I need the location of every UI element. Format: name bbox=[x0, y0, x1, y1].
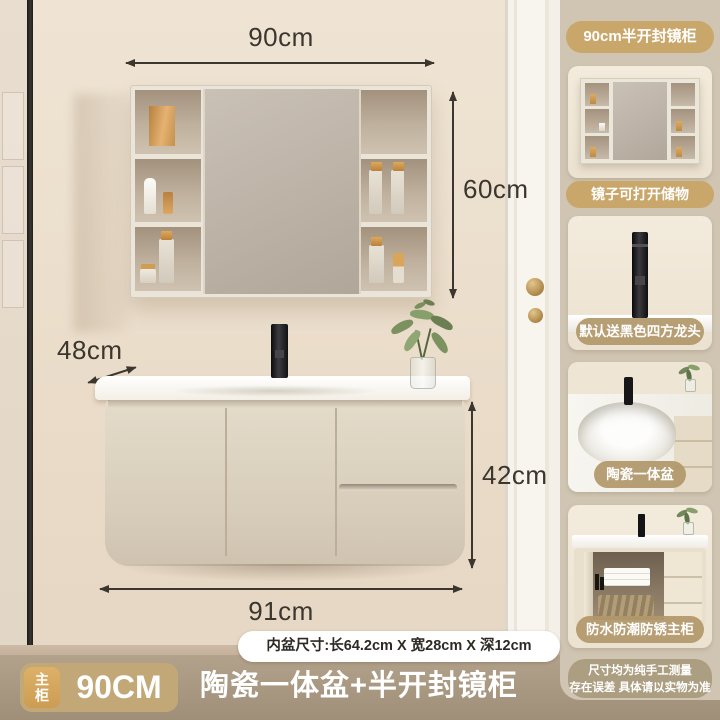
dim-label-top-width: 90cm bbox=[128, 22, 434, 53]
shelf-cell bbox=[361, 227, 427, 291]
card-mirror-cabinet bbox=[568, 66, 712, 178]
mirror-door bbox=[203, 89, 361, 294]
dim-arrow-bottom-width bbox=[100, 588, 462, 590]
feature-sidebar: 90cm半开封镜柜 镜子可打开储物 默认送黑色四方龙头 bbox=[560, 0, 720, 700]
shelf-cell bbox=[361, 159, 427, 223]
ceramic-basin bbox=[578, 402, 676, 466]
disclaimer: 尺寸均为纯手工测量 存在误差 具体请以实物为准 bbox=[568, 659, 712, 698]
mirror-cabinet-right-shelves bbox=[361, 90, 427, 291]
basin-rim bbox=[170, 385, 380, 397]
open-compartment bbox=[584, 552, 670, 620]
disclaimer-line2: 存在误差 具体请以实物为准 bbox=[568, 680, 712, 697]
shelf-cell bbox=[361, 90, 427, 154]
cosmetic-item bbox=[676, 121, 682, 131]
label-mirror-storage: 镜子可打开储物 bbox=[566, 181, 714, 208]
card-main-cabinet: 防水防潮防锈主柜 bbox=[568, 505, 712, 648]
cosmetic-bottle bbox=[369, 245, 384, 283]
dim-arrow-mirror-height bbox=[452, 92, 454, 298]
product-title: 陶瓷一体盆+半开封镜柜 bbox=[200, 655, 518, 720]
cosmetic-bottle bbox=[369, 170, 382, 214]
glass-partition-frame bbox=[27, 0, 33, 652]
vanity-cabinet bbox=[105, 400, 465, 566]
mini-mirror-cabinet bbox=[580, 78, 700, 164]
mini-cabinet-body bbox=[574, 548, 706, 625]
shelf-cell bbox=[135, 227, 201, 291]
cosmetic-bottle bbox=[163, 192, 173, 214]
label-mirror-cabinet: 90cm半开封镜柜 bbox=[566, 21, 714, 53]
mirror-cabinet-left-shelves bbox=[135, 90, 201, 291]
door-lock bbox=[526, 278, 544, 296]
label-basin: 陶瓷一体盆 bbox=[594, 461, 686, 488]
main-cabinet-badge: 主柜 bbox=[24, 667, 60, 708]
storage-basket bbox=[598, 595, 654, 617]
basin-faucet bbox=[624, 377, 633, 405]
cabinet-shadow bbox=[112, 564, 460, 582]
cosmetic-item bbox=[676, 147, 682, 157]
mini-plant bbox=[676, 364, 706, 394]
dim-arrow-cabinet-height bbox=[471, 402, 473, 568]
door-lock bbox=[528, 308, 543, 323]
cosmetic-item bbox=[590, 94, 596, 104]
shelf-cell bbox=[135, 90, 201, 154]
label-main-cabinet: 防水防潮防锈主柜 bbox=[576, 616, 704, 643]
cosmetic-jar bbox=[140, 269, 156, 283]
shelf-cell bbox=[135, 159, 201, 223]
mini-left-shelves bbox=[585, 83, 609, 159]
badge-text: 主柜 bbox=[35, 672, 49, 704]
towel-stack bbox=[604, 568, 650, 586]
door-seam bbox=[225, 408, 227, 556]
card-basin: 陶瓷一体盆 bbox=[568, 362, 712, 492]
basin-size-note: 内盆尺寸:长64.2cm X 宽28cm X 深12cm bbox=[238, 631, 560, 662]
dim-label-bottom-width: 91cm bbox=[100, 596, 462, 627]
cosmetic-bottle bbox=[391, 170, 404, 214]
mini-drawers bbox=[664, 552, 702, 620]
card-faucet: 默认送黑色四方龙头 bbox=[568, 216, 712, 350]
dim-arrow-top-width bbox=[126, 62, 434, 64]
dim-label-mirror-height: 60cm bbox=[463, 174, 529, 205]
toiletry-bottle bbox=[595, 574, 599, 590]
cosmetic-item bbox=[599, 123, 605, 131]
faucet bbox=[271, 324, 288, 378]
mini-plant bbox=[674, 507, 704, 537]
drawer-groove bbox=[339, 484, 457, 491]
mini-mirror-door bbox=[613, 82, 667, 160]
door-seam bbox=[335, 408, 337, 556]
mirror-cabinet bbox=[130, 85, 432, 298]
open-door-panel bbox=[584, 552, 593, 620]
mini-faucet bbox=[638, 514, 645, 537]
cosmetic-spray bbox=[393, 253, 404, 283]
black-faucet bbox=[632, 232, 648, 318]
glass-vase bbox=[410, 357, 436, 389]
counter-shadow bbox=[108, 400, 462, 408]
plant-decor bbox=[388, 308, 460, 390]
mini-right-shelves bbox=[671, 83, 695, 159]
product-image: 90cm 60cm 48cm 42cm 91cm 内盆尺寸:长64.2cm X … bbox=[0, 0, 720, 720]
size-value: 90CM bbox=[60, 669, 178, 706]
bathroom-door bbox=[505, 0, 560, 650]
label-faucet: 默认送黑色四方龙头 bbox=[576, 318, 704, 345]
size-pill: 主柜 90CM bbox=[20, 663, 178, 712]
glass-partition-reflection bbox=[0, 0, 28, 652]
reflection-shelf bbox=[2, 92, 24, 160]
cosmetic-box bbox=[149, 106, 175, 146]
disclaimer-line1: 尺寸均为纯手工测量 bbox=[568, 663, 712, 680]
dim-label-depth: 48cm bbox=[57, 335, 123, 366]
cosmetic-bottle bbox=[159, 239, 174, 283]
reflection-shelf bbox=[2, 240, 24, 308]
dim-label-cabinet-height: 42cm bbox=[482, 460, 548, 491]
wall-shadow bbox=[74, 94, 128, 332]
cosmetic-item bbox=[590, 147, 596, 157]
cosmetic-tube bbox=[144, 178, 156, 214]
reflection-shelf bbox=[2, 166, 24, 234]
